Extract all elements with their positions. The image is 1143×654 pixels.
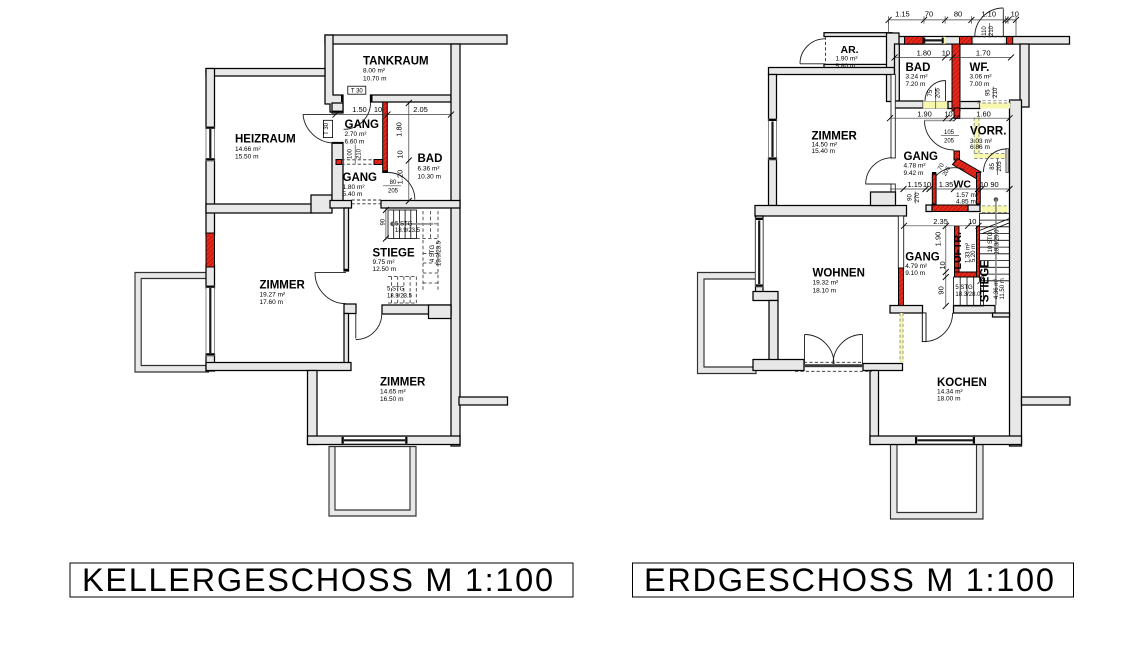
svg-text:1.90 m²: 1.90 m² xyxy=(836,56,859,63)
svg-text:17.60 m: 17.60 m xyxy=(260,299,284,306)
svg-text:BAD: BAD xyxy=(418,153,443,165)
svg-text:6.60 m: 6.60 m xyxy=(345,139,365,146)
svg-text:1.10: 1.10 xyxy=(981,10,996,19)
svg-text:15.50 m: 15.50 m xyxy=(235,154,259,161)
svg-text:80: 80 xyxy=(390,180,397,186)
svg-text:WOHNEN: WOHNEN xyxy=(813,268,865,280)
svg-text:12.50 m: 12.50 m xyxy=(373,266,397,273)
svg-text:5 STG: 5 STG xyxy=(955,285,973,291)
svg-text:1.50: 1.50 xyxy=(352,105,367,114)
svg-text:10: 10 xyxy=(942,49,950,58)
svg-text:205: 205 xyxy=(936,87,942,98)
svg-text:T 30: T 30 xyxy=(324,122,330,135)
svg-text:110: 110 xyxy=(982,26,988,36)
svg-text:18.00 m: 18.00 m xyxy=(937,396,961,403)
svg-text:14.66 m²: 14.66 m² xyxy=(235,146,261,153)
svg-text:105: 105 xyxy=(944,130,955,136)
svg-text:4.85 m: 4.85 m xyxy=(956,199,976,206)
svg-text:T 30: T 30 xyxy=(351,88,364,94)
svg-text:LUFTR.: LUFTR. xyxy=(952,232,964,269)
svg-text:9.10 m: 9.10 m xyxy=(905,270,925,277)
svg-text:10: 10 xyxy=(944,110,952,119)
svg-text:18.3/28.0: 18.3/28.0 xyxy=(955,292,981,298)
svg-text:WC: WC xyxy=(954,179,972,191)
svg-text:ERDGESCHOSS M 1:100: ERDGESCHOSS M 1:100 xyxy=(644,562,1056,598)
svg-text:16.50 m: 16.50 m xyxy=(380,396,404,403)
svg-text:70: 70 xyxy=(925,10,933,19)
svg-text:3.24 m²: 3.24 m² xyxy=(906,74,929,81)
svg-text:205: 205 xyxy=(997,161,1003,172)
svg-text:5 STG: 5 STG xyxy=(387,287,405,293)
svg-text:1.80: 1.80 xyxy=(917,49,932,58)
svg-text:18.3/25.0: 18.3/25.0 xyxy=(994,229,1000,255)
svg-text:10: 10 xyxy=(374,105,382,114)
svg-text:2.70 m²: 2.70 m² xyxy=(345,131,368,138)
svg-text:1.90: 1.90 xyxy=(934,232,943,247)
svg-text:1.70: 1.70 xyxy=(976,49,991,58)
svg-text:STIEGE: STIEGE xyxy=(980,260,992,303)
svg-text:210: 210 xyxy=(993,87,999,98)
svg-text:BAD: BAD xyxy=(906,62,931,74)
svg-text:1.80 m²: 1.80 m² xyxy=(343,184,366,191)
svg-text:5 STG: 5 STG xyxy=(395,222,413,228)
svg-text:ZIMMER: ZIMMER xyxy=(380,377,426,389)
svg-text:GANG: GANG xyxy=(904,151,939,163)
svg-text:90: 90 xyxy=(908,194,914,201)
svg-text:GANG: GANG xyxy=(905,251,940,263)
svg-text:5.20 m: 5.20 m xyxy=(971,244,977,262)
svg-text:18.9/23.5: 18.9/23.5 xyxy=(437,240,443,266)
svg-text:1.35: 1.35 xyxy=(939,180,954,189)
svg-text:10.30 m: 10.30 m xyxy=(418,173,442,180)
svg-text:AR.: AR. xyxy=(841,44,859,56)
svg-text:270: 270 xyxy=(915,192,921,203)
svg-text:10: 10 xyxy=(1011,10,1019,19)
svg-text:90: 90 xyxy=(990,180,998,189)
svg-text:19.27 m²: 19.27 m² xyxy=(260,292,286,299)
svg-text:11.50 m: 11.50 m xyxy=(1000,278,1006,299)
svg-text:6.86 m: 6.86 m xyxy=(970,144,990,151)
svg-text:5.80 m: 5.80 m xyxy=(836,63,856,70)
svg-text:1.15: 1.15 xyxy=(895,10,910,19)
svg-text:1.20: 1.20 xyxy=(396,170,405,185)
svg-text:205: 205 xyxy=(388,189,399,195)
svg-text:9.75 m²: 9.75 m² xyxy=(373,259,396,266)
svg-text:VORR.: VORR. xyxy=(970,126,1006,138)
svg-text:3.06 m²: 3.06 m² xyxy=(970,74,993,81)
svg-text:90: 90 xyxy=(381,218,387,225)
svg-text:75: 75 xyxy=(928,89,934,96)
svg-text:GANG: GANG xyxy=(345,119,380,131)
svg-text:1.80: 1.80 xyxy=(395,122,404,137)
svg-text:18.10 m: 18.10 m xyxy=(813,287,837,294)
svg-text:210: 210 xyxy=(989,25,995,36)
svg-text:10: 10 xyxy=(923,180,931,189)
svg-text:5.40 m: 5.40 m xyxy=(343,191,363,198)
svg-text:210: 210 xyxy=(357,148,363,159)
svg-text:1.90: 1.90 xyxy=(917,110,932,119)
svg-text:80: 80 xyxy=(954,10,962,19)
svg-text:4 STG: 4 STG xyxy=(430,245,436,263)
svg-text:15.40 m: 15.40 m xyxy=(812,148,836,155)
svg-text:18.9/23.5: 18.9/23.5 xyxy=(387,293,413,299)
svg-text:85: 85 xyxy=(990,162,996,169)
svg-text:8.00 m²: 8.00 m² xyxy=(363,68,386,75)
svg-text:WF.: WF. xyxy=(970,62,990,74)
svg-text:ZIMMER: ZIMMER xyxy=(260,280,306,292)
svg-text:14.34 m²: 14.34 m² xyxy=(937,388,963,395)
svg-text:1.60: 1.60 xyxy=(976,110,991,119)
svg-text:10: 10 xyxy=(968,217,976,226)
svg-text:6.36 m²: 6.36 m² xyxy=(418,165,441,172)
svg-text:10: 10 xyxy=(980,180,988,189)
svg-text:HEIZRAUM: HEIZRAUM xyxy=(235,134,296,146)
svg-text:GANG: GANG xyxy=(343,172,378,184)
svg-text:4.78 m²: 4.78 m² xyxy=(904,163,927,170)
svg-text:100: 100 xyxy=(348,148,354,159)
svg-text:10 STG: 10 STG xyxy=(988,231,994,252)
svg-text:1.15: 1.15 xyxy=(907,180,922,189)
svg-text:14.65 m²: 14.65 m² xyxy=(380,389,406,396)
svg-text:KOCHEN: KOCHEN xyxy=(937,377,987,389)
svg-text:10.70 m: 10.70 m xyxy=(363,75,387,82)
svg-text:19.32 m²: 19.32 m² xyxy=(813,280,839,287)
svg-text:2.05: 2.05 xyxy=(413,105,428,114)
svg-text:7.00 m: 7.00 m xyxy=(970,81,990,88)
svg-text:9.42 m: 9.42 m xyxy=(904,170,924,177)
svg-text:2.35: 2.35 xyxy=(933,217,948,226)
svg-text:18.9/23.5: 18.9/23.5 xyxy=(395,228,421,234)
svg-text:10: 10 xyxy=(396,150,405,158)
svg-text:STIEGE: STIEGE xyxy=(373,248,416,260)
svg-text:7.20 m: 7.20 m xyxy=(906,81,926,88)
svg-text:205: 205 xyxy=(944,138,955,144)
svg-text:TANKRAUM: TANKRAUM xyxy=(363,56,429,68)
svg-text:KELLERGESCHOSS M 1:100: KELLERGESCHOSS M 1:100 xyxy=(82,562,555,598)
svg-text:95: 95 xyxy=(986,89,992,96)
svg-text:90: 90 xyxy=(936,286,945,294)
